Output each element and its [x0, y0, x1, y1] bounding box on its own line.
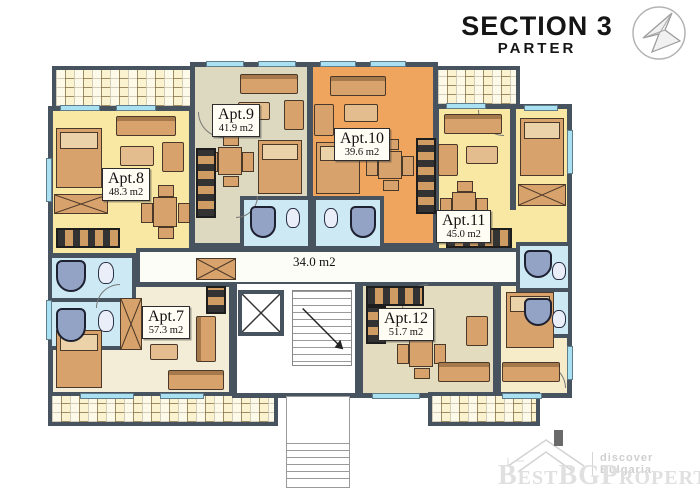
wardrobe [120, 298, 142, 350]
bathtub [250, 206, 276, 238]
stair-direction-arrow-icon [293, 291, 351, 365]
apartment-area: 45.0 m2 [442, 229, 485, 241]
watermark-brand: BestBGProperties [498, 460, 700, 492]
sofa [502, 362, 560, 382]
window [60, 105, 100, 111]
stairs-external [286, 396, 350, 488]
sofa [438, 362, 490, 382]
bathtub [524, 298, 552, 326]
toilet [98, 262, 114, 284]
window [80, 393, 134, 399]
apartment-label-apt11: Apt.11 45.0 m2 [436, 210, 491, 243]
wardrobe [196, 258, 236, 280]
apartment-label-apt8: Apt.8 48.3 m2 [102, 168, 150, 201]
sofa [116, 116, 176, 136]
window [46, 300, 52, 340]
apartment-name: Apt.7 [148, 308, 184, 325]
armchair [438, 144, 458, 176]
page-subtitle: PARTER [452, 40, 622, 57]
kitchen-counter [196, 148, 216, 218]
armchair [314, 104, 334, 136]
coffee-table [150, 344, 178, 360]
window [372, 393, 420, 399]
apartment-name: Apt.12 [384, 310, 428, 327]
balcony-top-left [52, 66, 194, 110]
bathtub [56, 260, 86, 292]
apartment-area: 51.7 m2 [384, 327, 428, 339]
window [446, 103, 486, 109]
elevator-x-icon [242, 294, 280, 332]
toilet [98, 310, 114, 332]
geometric-compass-logo-icon [630, 4, 688, 62]
apartment-label-apt10: Apt.10 39.6 m2 [334, 128, 390, 161]
floor-plan-page: SECTION 3 PARTER [0, 0, 700, 494]
apartment-area: 57.3 m2 [148, 325, 184, 337]
window [160, 393, 204, 399]
balcony-top-right [434, 66, 520, 108]
apartment-area: 41.9 m2 [218, 123, 254, 135]
bathtub [524, 250, 552, 278]
page-title: SECTION 3 [452, 12, 622, 40]
kitchen-counter [56, 228, 120, 248]
sofa [196, 316, 216, 362]
toilet [552, 310, 566, 328]
bathtub [350, 206, 376, 238]
apartment-label-apt7: Apt.7 57.3 m2 [142, 306, 190, 339]
apartment-name: Apt.8 [108, 170, 144, 187]
stairs-internal [292, 290, 352, 366]
coffee-table [466, 146, 498, 164]
window [567, 346, 573, 380]
bathtub [56, 308, 86, 342]
window [567, 130, 573, 174]
toilet [286, 208, 300, 228]
coffee-table [120, 146, 154, 166]
sofa [240, 74, 298, 94]
bed [56, 128, 102, 188]
apartment-label-apt12: Apt.12 51.7 m2 [378, 308, 434, 341]
toilet [552, 262, 566, 280]
window [370, 61, 406, 67]
window [116, 105, 156, 111]
kitchen-counter [366, 286, 424, 306]
apartment-area: 48.3 m2 [108, 187, 144, 199]
toilet [324, 208, 338, 228]
sofa [444, 114, 502, 134]
window [502, 393, 542, 399]
stairs-external-treads [287, 443, 349, 483]
armchair [284, 100, 304, 130]
wardrobe [518, 184, 566, 206]
window [206, 61, 244, 67]
elevator [238, 290, 284, 336]
apartment-name: Apt.11 [442, 212, 485, 229]
bed [520, 118, 564, 176]
apartment-name: Apt.10 [340, 130, 384, 147]
plan-title-block: SECTION 3 PARTER [452, 12, 622, 57]
bed [258, 140, 302, 194]
window [258, 61, 296, 67]
coffee-table [344, 104, 378, 122]
window [320, 61, 356, 67]
corridor-area-label: 34.0 m2 [293, 254, 336, 270]
window [46, 158, 52, 202]
kitchen-counter [206, 286, 226, 314]
kitchen-counter [416, 138, 436, 214]
wardrobe [54, 194, 108, 214]
armchair [162, 142, 184, 172]
sofa [168, 370, 224, 390]
window [524, 105, 558, 111]
apartment-name: Apt.9 [218, 106, 254, 123]
wall-apt11-bedroom-divider [510, 108, 516, 210]
apartment-area: 39.6 m2 [340, 147, 384, 159]
sofa [330, 76, 386, 96]
armchair [466, 316, 488, 346]
apartment-label-apt9: Apt.9 41.9 m2 [212, 104, 260, 137]
